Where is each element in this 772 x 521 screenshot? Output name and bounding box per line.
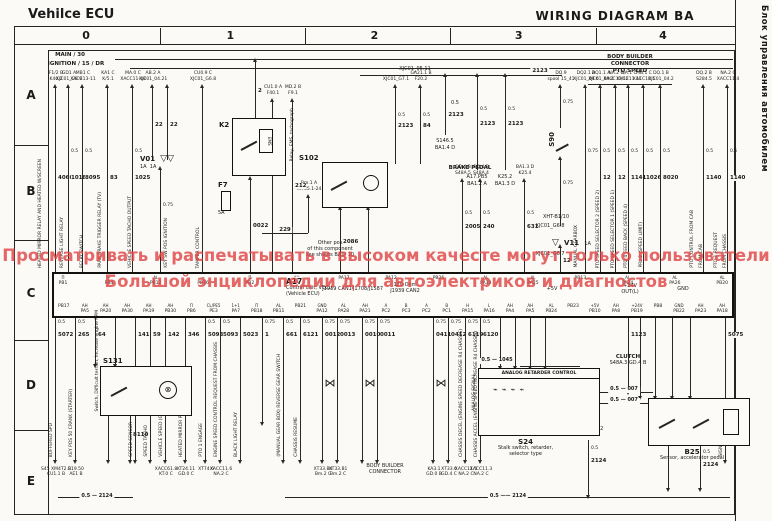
ecu-name2: (Vehicle ECU): [286, 292, 332, 298]
note-label: PTO SPEED: [613, 68, 647, 74]
wire-segment: [14, 430, 48, 431]
ecu-pin: AHPB30: [165, 304, 177, 314]
row-c: C: [21, 286, 41, 300]
wire: [530, 314, 531, 368]
ecu-pin: ALPB12: [150, 276, 162, 286]
function-label: HEATED MIRROR RELAY AND HEATED W/SCREEN: [38, 159, 43, 268]
note-label: XJC01_05.11: [399, 67, 431, 73]
diode-rating: 1A: [140, 164, 147, 170]
note-label: BA1.3 D: [495, 182, 515, 188]
switch-s24: ANALOG RETARDER CONTROL ⌁⌁⌁⌁: [478, 368, 600, 436]
wire: 12: [560, 246, 561, 272]
wire: [108, 414, 109, 462]
ecu-pin: APC2: [381, 304, 391, 314]
wire: [368, 208, 369, 272]
relay-k2-id: K2: [219, 121, 229, 129]
ecu-pin: AHPA4: [505, 304, 515, 314]
wire: Bm.1 AX7/45.1-24: [308, 196, 309, 233]
ecu-pin: GNDPB22: [673, 304, 685, 314]
wire: 0.756119CHASSIS DECEL (ENGINE SPEED DECR…: [465, 314, 466, 462]
diagram-title: WIRING DIAGRAM BA: [470, 9, 760, 23]
wire: 0.75: [160, 168, 161, 272]
ecu-pin: AHPA5: [525, 304, 535, 314]
wire: 0.55072BUFFERED SPDS45 XM4T2.BCU1.1 B: [55, 314, 56, 462]
ecu-pin: AHPA23: [695, 304, 706, 314]
wire: 0.750011: [377, 314, 378, 462]
twisted-pair-icon: ⋈: [325, 378, 336, 389]
col-1: 1: [158, 28, 302, 44]
function-label: FROM CAB: [699, 244, 704, 268]
note-label: XJC01_G6.8: [535, 224, 564, 230]
ecu-pin: LPA16: [483, 304, 494, 314]
note-label: BA1.2 A: [467, 182, 487, 188]
ecu-pin: PB13: [575, 276, 587, 286]
wire-segment: [14, 26, 735, 27]
wire: 0022: [250, 178, 251, 272]
switch-contact-icon: [241, 141, 258, 151]
column-ruler: 0 1 2 3 4: [14, 28, 735, 44]
wire: [655, 314, 656, 398]
diode-icon: ▽: [552, 238, 559, 248]
switch-s102: S102: [322, 162, 388, 208]
s24-title: ANALOG RETARDER CONTROL: [479, 369, 599, 379]
note-label: IGNITION / 15 / DR: [48, 61, 104, 67]
ecu-pin: ALPA28: [338, 304, 349, 314]
wire: DQ.1 BXJC01_04.20.58020: [660, 86, 661, 272]
ecu-pin: ΠPB1: [58, 276, 68, 286]
ecu-pin: AHPA19: [143, 304, 154, 314]
ecu-pin: ~PB16: [197, 276, 209, 286]
switch-contact-icon: [111, 387, 128, 397]
col-2: 2: [302, 28, 446, 44]
wire: 0.55093PTO 1 ENGAGEXT74.6: [205, 314, 206, 462]
note-label: MAIN / 30: [55, 52, 85, 58]
ecu-pin: ALPB20: [716, 276, 728, 286]
function-label: ANALOG SIGNAL: [472, 374, 477, 411]
wire: 0.750412XT33.6GD.4 C: [448, 314, 449, 462]
function-label: PTO 4 FEED BACK (SPEED 4): [624, 204, 629, 268]
ecu-pin: ALPA13: [480, 276, 491, 286]
note-label: 0.5 — 007: [608, 387, 640, 393]
note-label: 0.5 — 2124: [79, 494, 114, 500]
frame-line: [596, 28, 597, 44]
wire: 0.750012XT33.B4Bm.2 C: [322, 314, 323, 462]
wire: F1/2 BK40.24060: [55, 86, 56, 272]
selector-contacts-icon: ⌁⌁⌁⌁: [479, 379, 599, 394]
note-label: J1939 CAN2: [390, 289, 420, 295]
wire: GD1 AXJC01_G8.90.51018: [68, 86, 69, 272]
wire: [545, 314, 546, 368]
wire-segment: [14, 340, 48, 341]
wire-segment: [14, 514, 735, 515]
function-label: PTO SPEED SELECTOR 2 (SPEED 2): [596, 190, 601, 268]
wire: BA1.3 DK25.40.5631: [524, 180, 525, 272]
switch-s102-id: S102: [299, 154, 319, 162]
function-label: PRL 2 (SPEED LIMIT): [639, 222, 644, 268]
note-label: OUT(L): [621, 290, 638, 296]
note-label: S48A.3 GD.4 B: [610, 361, 647, 367]
wire-segment: [14, 44, 735, 45]
wire: CU0.9 CXJC01_G6.8: [202, 86, 203, 272]
note-label: +5V: [547, 287, 558, 293]
diode-v01: V01 ▽▽ 1A 1A: [140, 146, 174, 171]
function-label: KEY SW POS IGNITION: [164, 218, 169, 268]
note-label: BRAKE PEDAL: [449, 165, 492, 171]
function-label: PTO SPEED SELECTOR 1 (SPEED 1): [611, 190, 616, 268]
ecu-pin: AHPA21: [359, 304, 370, 314]
ecu-pin: APC2: [421, 304, 431, 314]
note-label: BODY BUILDER: [607, 54, 653, 60]
ecu-pin: PA17: [338, 276, 349, 286]
page-title: Vehilce ECU: [28, 7, 114, 22]
function-label: RELAY SWITCH: [80, 235, 85, 268]
s24-label2: selector type: [498, 452, 553, 458]
ecu-pin: +5VPB10: [589, 304, 601, 314]
note-label: A17.PB5: [467, 175, 488, 181]
note-label: GND: [677, 287, 688, 293]
ecu-pin: PB17: [58, 304, 70, 314]
col-3: 3: [447, 28, 591, 44]
wire: 0.52123: [505, 75, 506, 170]
switch-s131-id: S131: [103, 357, 123, 365]
pressure-switch-icon: [363, 175, 379, 191]
wire: [515, 314, 516, 368]
twisted-pair-icon: ⋈: [436, 378, 447, 389]
note-label: 0.5 — 007: [608, 398, 640, 404]
switch-s131: S131 ⊗: [100, 366, 192, 416]
diode-v11-id: V11: [564, 239, 579, 247]
wire: GD.4 BS48A.40.5240: [480, 180, 481, 272]
ecu-pin: ALPA25: [527, 276, 538, 286]
note-label: BA1.4 D: [435, 146, 455, 152]
wire: 0.750013XT33.B1Bm.2 C: [337, 314, 338, 462]
ecu-pin: BPC3: [401, 304, 411, 314]
note-label: CONNECTOR: [369, 470, 401, 476]
function-label: PTO CONTROL FROM CAB: [690, 210, 695, 268]
function-label: REVERSE LIGHT RELAY: [60, 217, 65, 268]
wiring-diagram-page: Vehilce ECU WIRING DIAGRAM BA 0 1 2 3 4 …: [0, 0, 772, 521]
wire: DQ.9spool 15_410.75: [560, 86, 561, 128]
ecu-pin: ΠPB2: [245, 276, 255, 286]
ecu-pin: AHPA5: [80, 304, 90, 314]
wire: 0.55093ENGINE SPEED CONTROL REQUEST FROM…: [220, 314, 221, 462]
switch-s90-id: S90: [548, 132, 556, 147]
wire: 0.52124: [588, 440, 589, 497]
frame-line: [450, 28, 451, 44]
function-label: PTO 1 REQUEST: [714, 232, 719, 268]
note-label: K25.2: [498, 175, 512, 181]
col-4: 4: [591, 28, 735, 44]
lamp-icon: ⊗: [159, 381, 177, 399]
col-0: 0: [14, 28, 158, 44]
note-label: 2123: [530, 68, 549, 74]
note-label: XJC01_G6.7: [535, 252, 564, 258]
note-label: see sheets BA1/ 10: [306, 253, 354, 259]
row-a: A: [21, 88, 41, 102]
ecu-pin: CL/PE5PE3: [207, 304, 221, 314]
note-label: CONNECTOR: [611, 61, 649, 67]
wire: GA21.1 BF20.20.584: [420, 86, 421, 164]
ecu-pin: AHPA18: [717, 304, 728, 314]
wire: [445, 75, 446, 135]
wire: 5023BLACK LIGHT RELAY: [240, 314, 241, 462]
ecu-pin: PB21: [295, 304, 307, 314]
function-label: VEHICLE SPEED TACHO OUTPUT: [128, 196, 133, 268]
frame-line: [14, 26, 15, 515]
switch-contact-icon: [331, 181, 348, 191]
wire: [672, 314, 673, 398]
diode-icon: ▽▽: [160, 154, 174, 164]
ecu-pin: GNDPA12: [316, 304, 327, 314]
wire: 0.750010: [362, 314, 363, 462]
diode-v11: ▽ V11 1A: [552, 230, 591, 249]
note-label: 0.5: [451, 101, 459, 107]
switch-contact-icon: [693, 419, 710, 429]
note-label: 0.5 —— 2124: [488, 494, 528, 500]
row-d: D: [21, 378, 41, 392]
wire: [640, 314, 641, 398]
function-label: TAMPER CONTROL: [196, 227, 201, 268]
wire: 0.750411KA3.1GD.0 B: [433, 314, 434, 462]
wire: 0.56121CHASSIS RESUME: [300, 314, 301, 462]
fuse-rating: 5A: [218, 211, 231, 217]
wire: 0.52123: [477, 75, 478, 170]
ecu-pin: AHPA20: [100, 304, 111, 314]
note-label: J1708/J1587: [353, 287, 383, 293]
ecu-pin: PB23: [567, 304, 579, 314]
wire: 0.5661(MANUAL GEAR BOX) REVERSE GEAR SWI…: [283, 314, 284, 462]
ecu-pin: HPA15: [462, 304, 473, 314]
ecu-pin: ΠPB6: [186, 304, 196, 314]
b25-label: Sensor, accelerator pedal: [660, 456, 724, 462]
ecu-pin: ~PB4: [104, 276, 114, 286]
relay-coil-icon: EMS: [259, 129, 273, 153]
note-label: S146.5: [436, 139, 454, 145]
ecu-pin: AHPA8: [611, 304, 621, 314]
ecu-pin: PB8: [653, 304, 663, 314]
switch-s131-label: Switch, Difficult terrain, Increase engi…: [95, 310, 100, 411]
frame-line: [305, 28, 306, 44]
note-label: J1939 CAN1: [322, 287, 352, 293]
fuse-f7-id: F7: [218, 181, 228, 189]
wire: GD.4 BS48A.50.52005: [462, 180, 463, 272]
note-label: 229: [277, 227, 292, 233]
ecu-pin: +24VPB19: [631, 304, 643, 314]
ecu-pin: ALPA26: [669, 276, 680, 286]
twisted-pair-icon: ⋈: [365, 378, 376, 389]
wire: XJC01_G7.10.52123: [395, 86, 396, 164]
ecu-pin: 1+1PA7: [231, 304, 241, 314]
ecu-pin: ALPB11: [273, 304, 285, 314]
wire: 0.751: [262, 314, 263, 424]
wire-segment: [14, 145, 48, 146]
wire: KA1 CK/5.183: [107, 86, 108, 272]
function-label: FROM CHASSIS: [723, 234, 728, 268]
b25-caption: B25 Sensor, accelerator pedal: [660, 448, 724, 462]
s24-caption: S24 Stalk switch, retarder, selector typ…: [498, 438, 553, 458]
ecu-pin: BPC1: [442, 304, 452, 314]
diode-rating: 1A: [150, 164, 157, 170]
sensor-b25: [648, 398, 750, 446]
diode-rating: 1A: [584, 241, 591, 247]
wire: 0.5265KEY POS 50 CRANK (STARTER)S19.50AE…: [75, 314, 76, 462]
wire: [690, 314, 691, 398]
ecu-pin: ALPB24: [546, 304, 558, 314]
potentiometer-icon: [723, 409, 739, 435]
frame-line: [160, 28, 161, 44]
note-label: 0.5 — 1045: [479, 358, 514, 364]
note-label: 2123: [448, 112, 463, 118]
note-label: XHT-B1/10: [543, 215, 569, 221]
relay-k2-label: Relay, EMS, tachograph: [290, 108, 295, 161]
diode-v01-id: V01: [140, 155, 155, 163]
ecu-pin: PB26: [433, 276, 445, 286]
function-label: PARK BRAKE TRIGGER RELAY (TV): [98, 192, 103, 268]
ecu-pin: ΠPB18: [251, 304, 263, 314]
ecu-pins-bottom: PB17AHPA5AHPA20AHPA30AHPA19AHPB30ΠPB6CL/…: [58, 304, 728, 314]
switch-contact-icon: [659, 419, 676, 429]
wire-segment: [262, 233, 308, 234]
fuse-f7: F7 5A: [218, 172, 231, 217]
fuse-icon: [221, 191, 231, 211]
ecu-pin: AHPA30: [122, 304, 133, 314]
sidebar-vertical-label: Блок управления автомобилем: [759, 5, 769, 172]
relay-k2: K2 EMS: [232, 118, 286, 176]
